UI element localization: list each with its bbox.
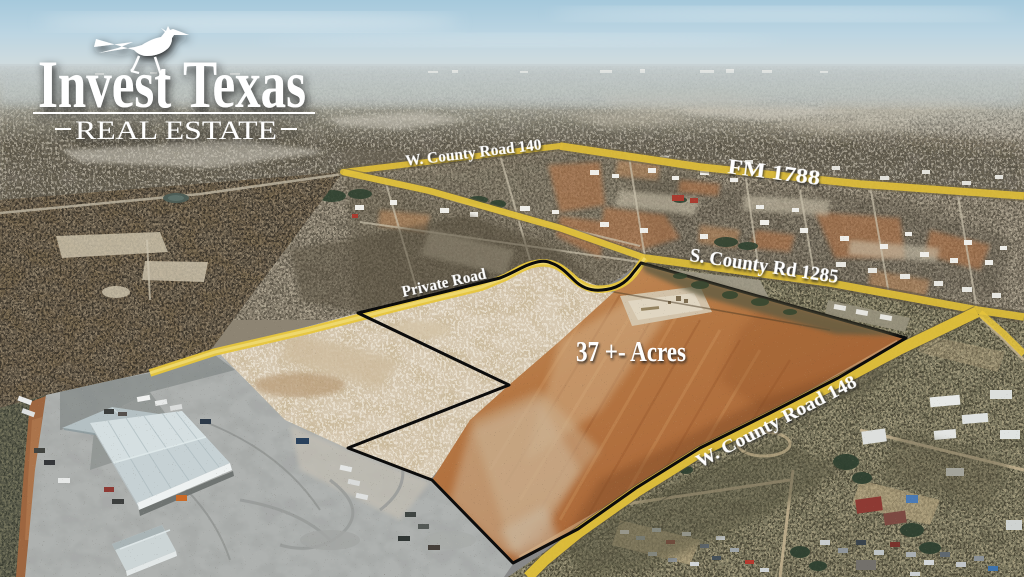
svg-text:REAL ESTATE: REAL ESTATE — [75, 116, 277, 145]
svg-text:37 +- Acres: 37 +- Acres — [576, 336, 686, 368]
svg-text:Invest Texas: Invest Texas — [38, 46, 306, 122]
